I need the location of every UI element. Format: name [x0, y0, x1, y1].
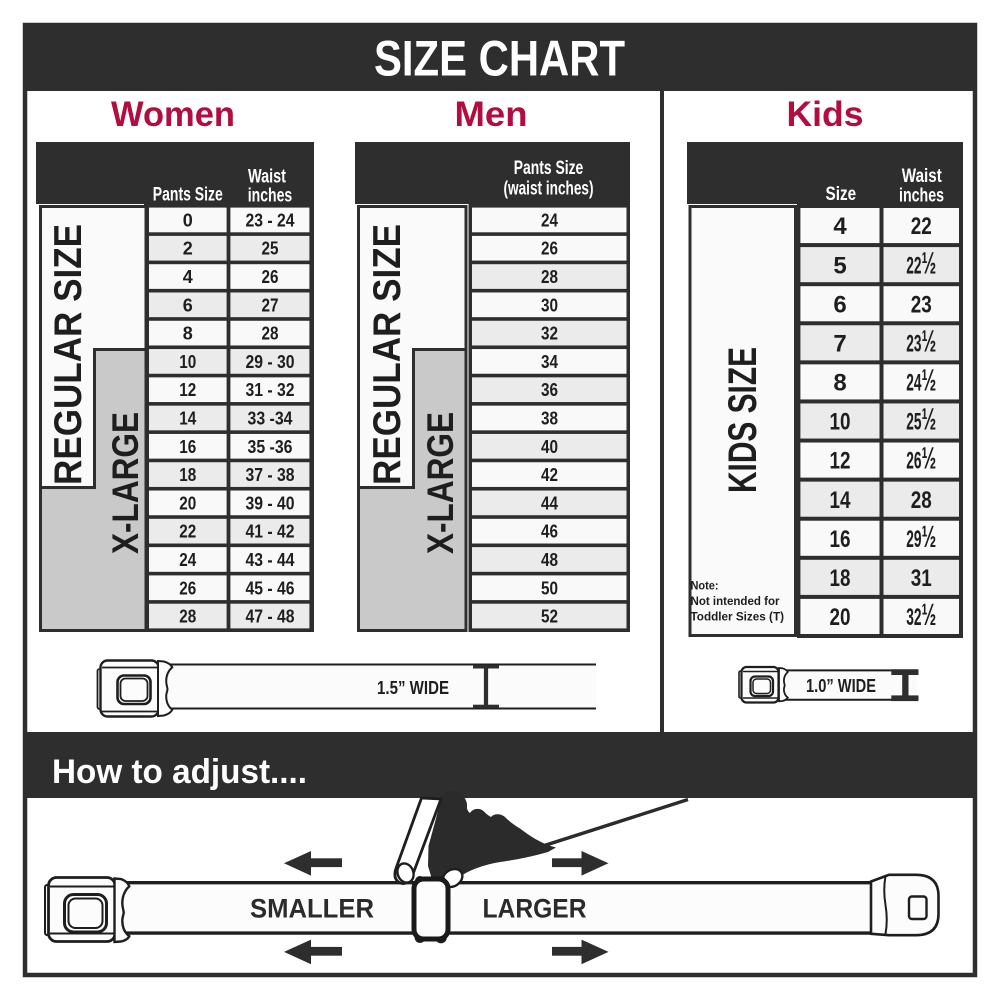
svg-text:23: 23: [911, 291, 932, 318]
svg-text:40: 40: [541, 437, 558, 457]
svg-text:Women: Women: [111, 95, 235, 134]
svg-text:31 - 32: 31 - 32: [246, 380, 295, 400]
svg-text:16: 16: [179, 437, 196, 457]
svg-text:29 - 30: 29 - 30: [246, 352, 295, 372]
svg-text:44: 44: [541, 493, 558, 513]
svg-text:16: 16: [830, 526, 851, 553]
svg-text:1.5” WIDE: 1.5” WIDE: [377, 678, 449, 698]
svg-text:REGULAR SIZE: REGULAR SIZE: [47, 224, 90, 485]
svg-text:26: 26: [179, 578, 196, 598]
svg-text:45 - 46: 45 - 46: [246, 578, 295, 598]
svg-text:Pants Size: Pants Size: [153, 184, 223, 206]
svg-text:48: 48: [541, 550, 558, 570]
svg-text:24: 24: [179, 550, 196, 570]
svg-text:20: 20: [179, 493, 196, 513]
svg-text:4: 4: [833, 213, 847, 240]
svg-text:27: 27: [262, 295, 279, 315]
svg-text:34: 34: [541, 352, 558, 372]
svg-text:32: 32: [541, 324, 558, 344]
svg-text:6: 6: [183, 295, 193, 315]
svg-text:26: 26: [541, 239, 558, 259]
svg-text:X-LARGE: X-LARGE: [105, 412, 146, 554]
svg-text:SIZE CHART: SIZE CHART: [374, 31, 625, 87]
svg-text:4: 4: [183, 267, 193, 287]
svg-text:7: 7: [833, 330, 846, 357]
svg-text:8: 8: [833, 370, 846, 397]
svg-text:28: 28: [179, 607, 196, 627]
svg-text:43 - 44: 43 - 44: [246, 550, 295, 570]
svg-text:Size: Size: [826, 183, 857, 205]
svg-text:31: 31: [911, 565, 932, 592]
svg-text:inches: inches: [248, 185, 293, 207]
svg-text:39 - 40: 39 - 40: [246, 493, 295, 513]
svg-text:33 -34: 33 -34: [248, 409, 293, 429]
svg-text:23 - 24: 23 - 24: [246, 210, 295, 230]
svg-text:1.0” WIDE: 1.0” WIDE: [806, 676, 876, 696]
svg-text:38: 38: [541, 409, 558, 429]
svg-text:12: 12: [830, 448, 851, 475]
svg-text:(waist inches): (waist inches): [504, 178, 594, 200]
svg-text:50: 50: [541, 578, 558, 598]
svg-text:41 - 42: 41 - 42: [246, 522, 295, 542]
svg-text:How to adjust....: How to adjust....: [52, 753, 307, 791]
svg-text:10: 10: [830, 409, 851, 436]
svg-text:X-LARGE: X-LARGE: [420, 412, 461, 554]
svg-text:Toddler Sizes (T): Toddler Sizes (T): [691, 610, 785, 624]
svg-text:inches: inches: [899, 185, 944, 207]
svg-text:52: 52: [541, 607, 558, 627]
svg-text:14: 14: [179, 409, 196, 429]
svg-text:SMALLER: SMALLER: [250, 894, 374, 924]
svg-text:42: 42: [541, 465, 558, 485]
svg-text:LARGER: LARGER: [483, 894, 587, 924]
svg-text:Kids: Kids: [787, 95, 864, 134]
svg-text:Men: Men: [455, 95, 528, 134]
svg-text:Pants Size: Pants Size: [514, 157, 584, 179]
svg-text:28: 28: [911, 487, 932, 514]
svg-text:22: 22: [911, 213, 932, 240]
svg-text:Not intended for: Not intended for: [691, 594, 780, 608]
svg-text:30: 30: [541, 295, 558, 315]
svg-text:5: 5: [833, 252, 846, 279]
svg-text:18: 18: [830, 565, 851, 592]
svg-text:25: 25: [262, 239, 279, 259]
svg-text:10: 10: [179, 352, 196, 372]
svg-text:36: 36: [541, 380, 558, 400]
svg-text:0: 0: [183, 210, 193, 230]
svg-text:Note:: Note:: [691, 579, 719, 593]
svg-text:REGULAR SIZE: REGULAR SIZE: [366, 224, 409, 485]
svg-text:22: 22: [179, 522, 196, 542]
svg-text:37 - 38: 37 - 38: [246, 465, 295, 485]
svg-text:KIDS SIZE: KIDS SIZE: [721, 347, 765, 493]
svg-text:47 - 48: 47 - 48: [246, 607, 295, 627]
svg-text:35 -36: 35 -36: [248, 437, 293, 457]
svg-text:2: 2: [183, 239, 193, 259]
svg-text:24: 24: [541, 210, 558, 230]
svg-text:14: 14: [830, 487, 852, 514]
svg-text:28: 28: [262, 324, 279, 344]
svg-text:28: 28: [541, 267, 558, 287]
svg-text:46: 46: [541, 522, 558, 542]
svg-text:18: 18: [179, 465, 196, 485]
svg-text:26: 26: [262, 267, 279, 287]
svg-text:20: 20: [830, 604, 851, 631]
svg-text:12: 12: [179, 380, 196, 400]
svg-text:8: 8: [183, 324, 193, 344]
svg-text:6: 6: [833, 291, 846, 318]
